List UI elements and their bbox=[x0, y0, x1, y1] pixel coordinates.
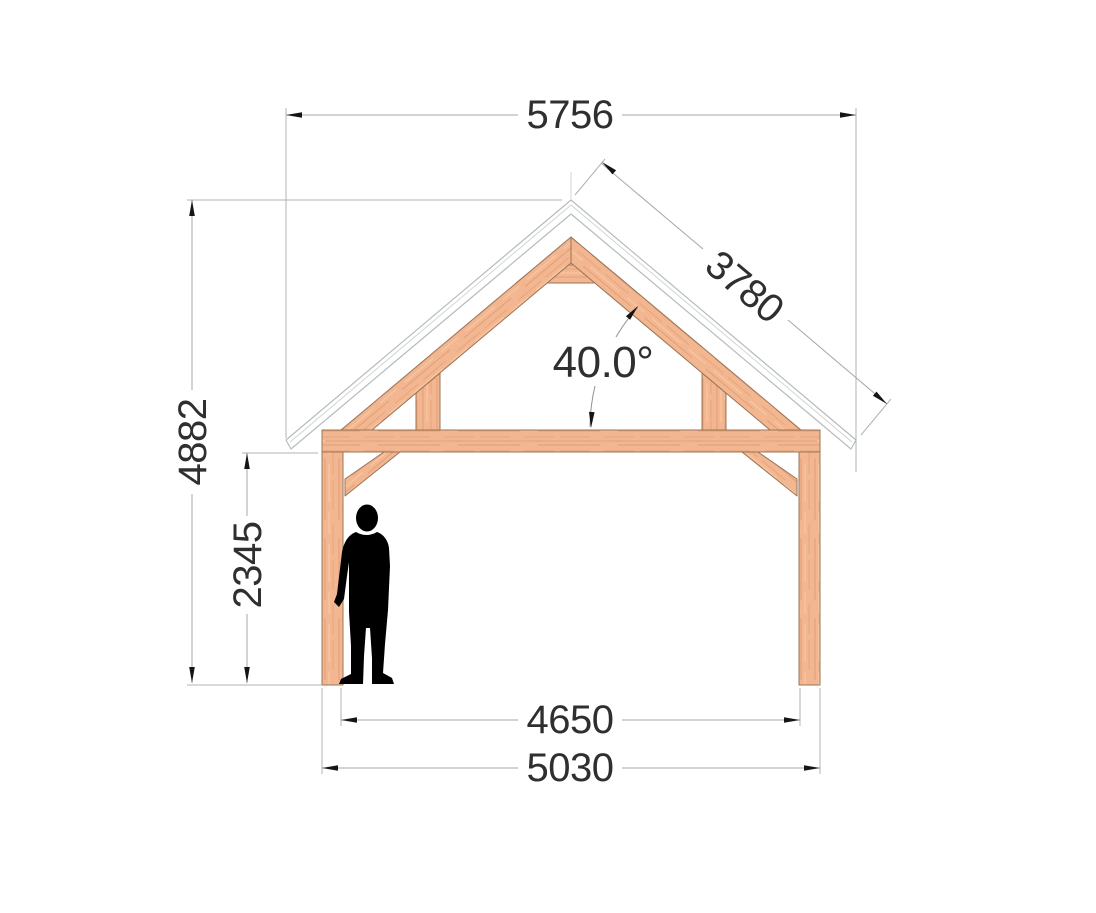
label-outer-span: 5030 bbox=[527, 746, 614, 790]
label-roof-width: 5756 bbox=[527, 93, 614, 137]
left-rafter bbox=[341, 237, 571, 430]
left-knee-brace bbox=[345, 452, 400, 496]
arrow-clear-height-bottom bbox=[244, 667, 250, 683]
label-total-height: 4882 bbox=[171, 399, 215, 486]
slope-peak-extension-line bbox=[575, 159, 605, 195]
arrow-outer-span-left bbox=[322, 765, 338, 771]
arrow-total-height-bottom bbox=[189, 667, 195, 683]
right-knee-brace bbox=[742, 452, 797, 496]
dim-slope-line-lower bbox=[788, 320, 887, 404]
arrow-inner-span-right bbox=[784, 717, 800, 723]
arrow-roof-width-right bbox=[840, 112, 856, 118]
arrow-slope-upper bbox=[602, 162, 616, 174]
arrow-clear-height-top bbox=[244, 453, 250, 469]
drawing-canvas: 5756 3780 40.0° 4882 2345 4650 5030 bbox=[0, 0, 1096, 913]
arrow-slope-lower bbox=[873, 392, 887, 404]
left-post bbox=[322, 452, 343, 685]
label-clear-height: 2345 bbox=[226, 522, 270, 609]
arrow-total-height-top bbox=[189, 200, 195, 216]
person-head bbox=[356, 505, 378, 532]
arrow-roof-width-left bbox=[286, 112, 302, 118]
right-post bbox=[799, 452, 820, 685]
slope-eave-extension-line bbox=[861, 399, 891, 435]
label-inner-span: 4650 bbox=[527, 698, 614, 742]
dim-slope-line-upper bbox=[601, 163, 703, 249]
right-rafter bbox=[571, 237, 801, 430]
arrow-outer-span-right bbox=[804, 765, 820, 771]
label-roof-angle: 40.0° bbox=[553, 338, 654, 387]
arrow-inner-span-left bbox=[341, 717, 357, 723]
